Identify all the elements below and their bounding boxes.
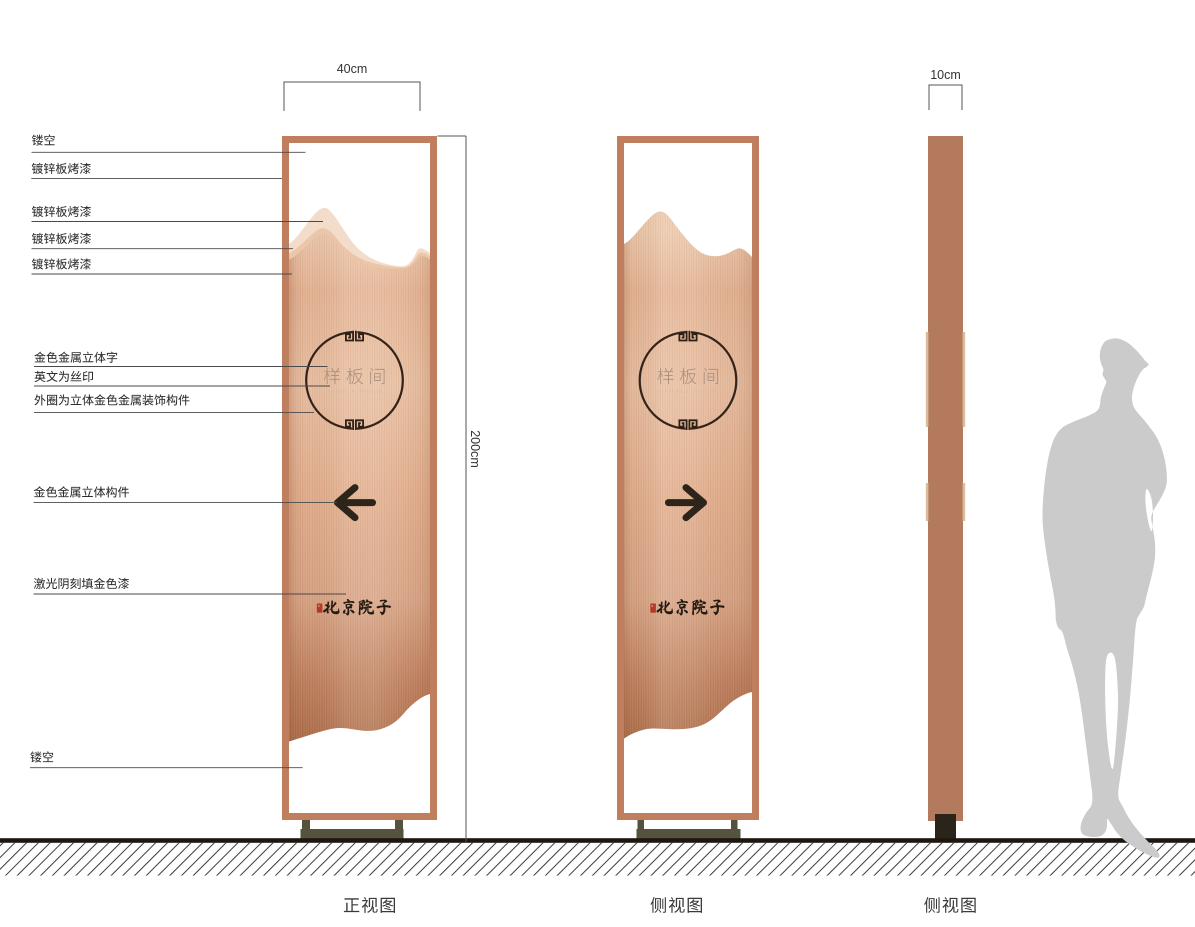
svg-text:200cm: 200cm — [468, 430, 482, 468]
svg-text:SAMPLE ROOM: SAMPLE ROOM — [326, 389, 384, 395]
svg-text:10cm: 10cm — [930, 68, 961, 82]
svg-text:40cm: 40cm — [337, 62, 368, 76]
svg-text:SAMPLE ROOM: SAMPLE ROOM — [659, 389, 717, 395]
